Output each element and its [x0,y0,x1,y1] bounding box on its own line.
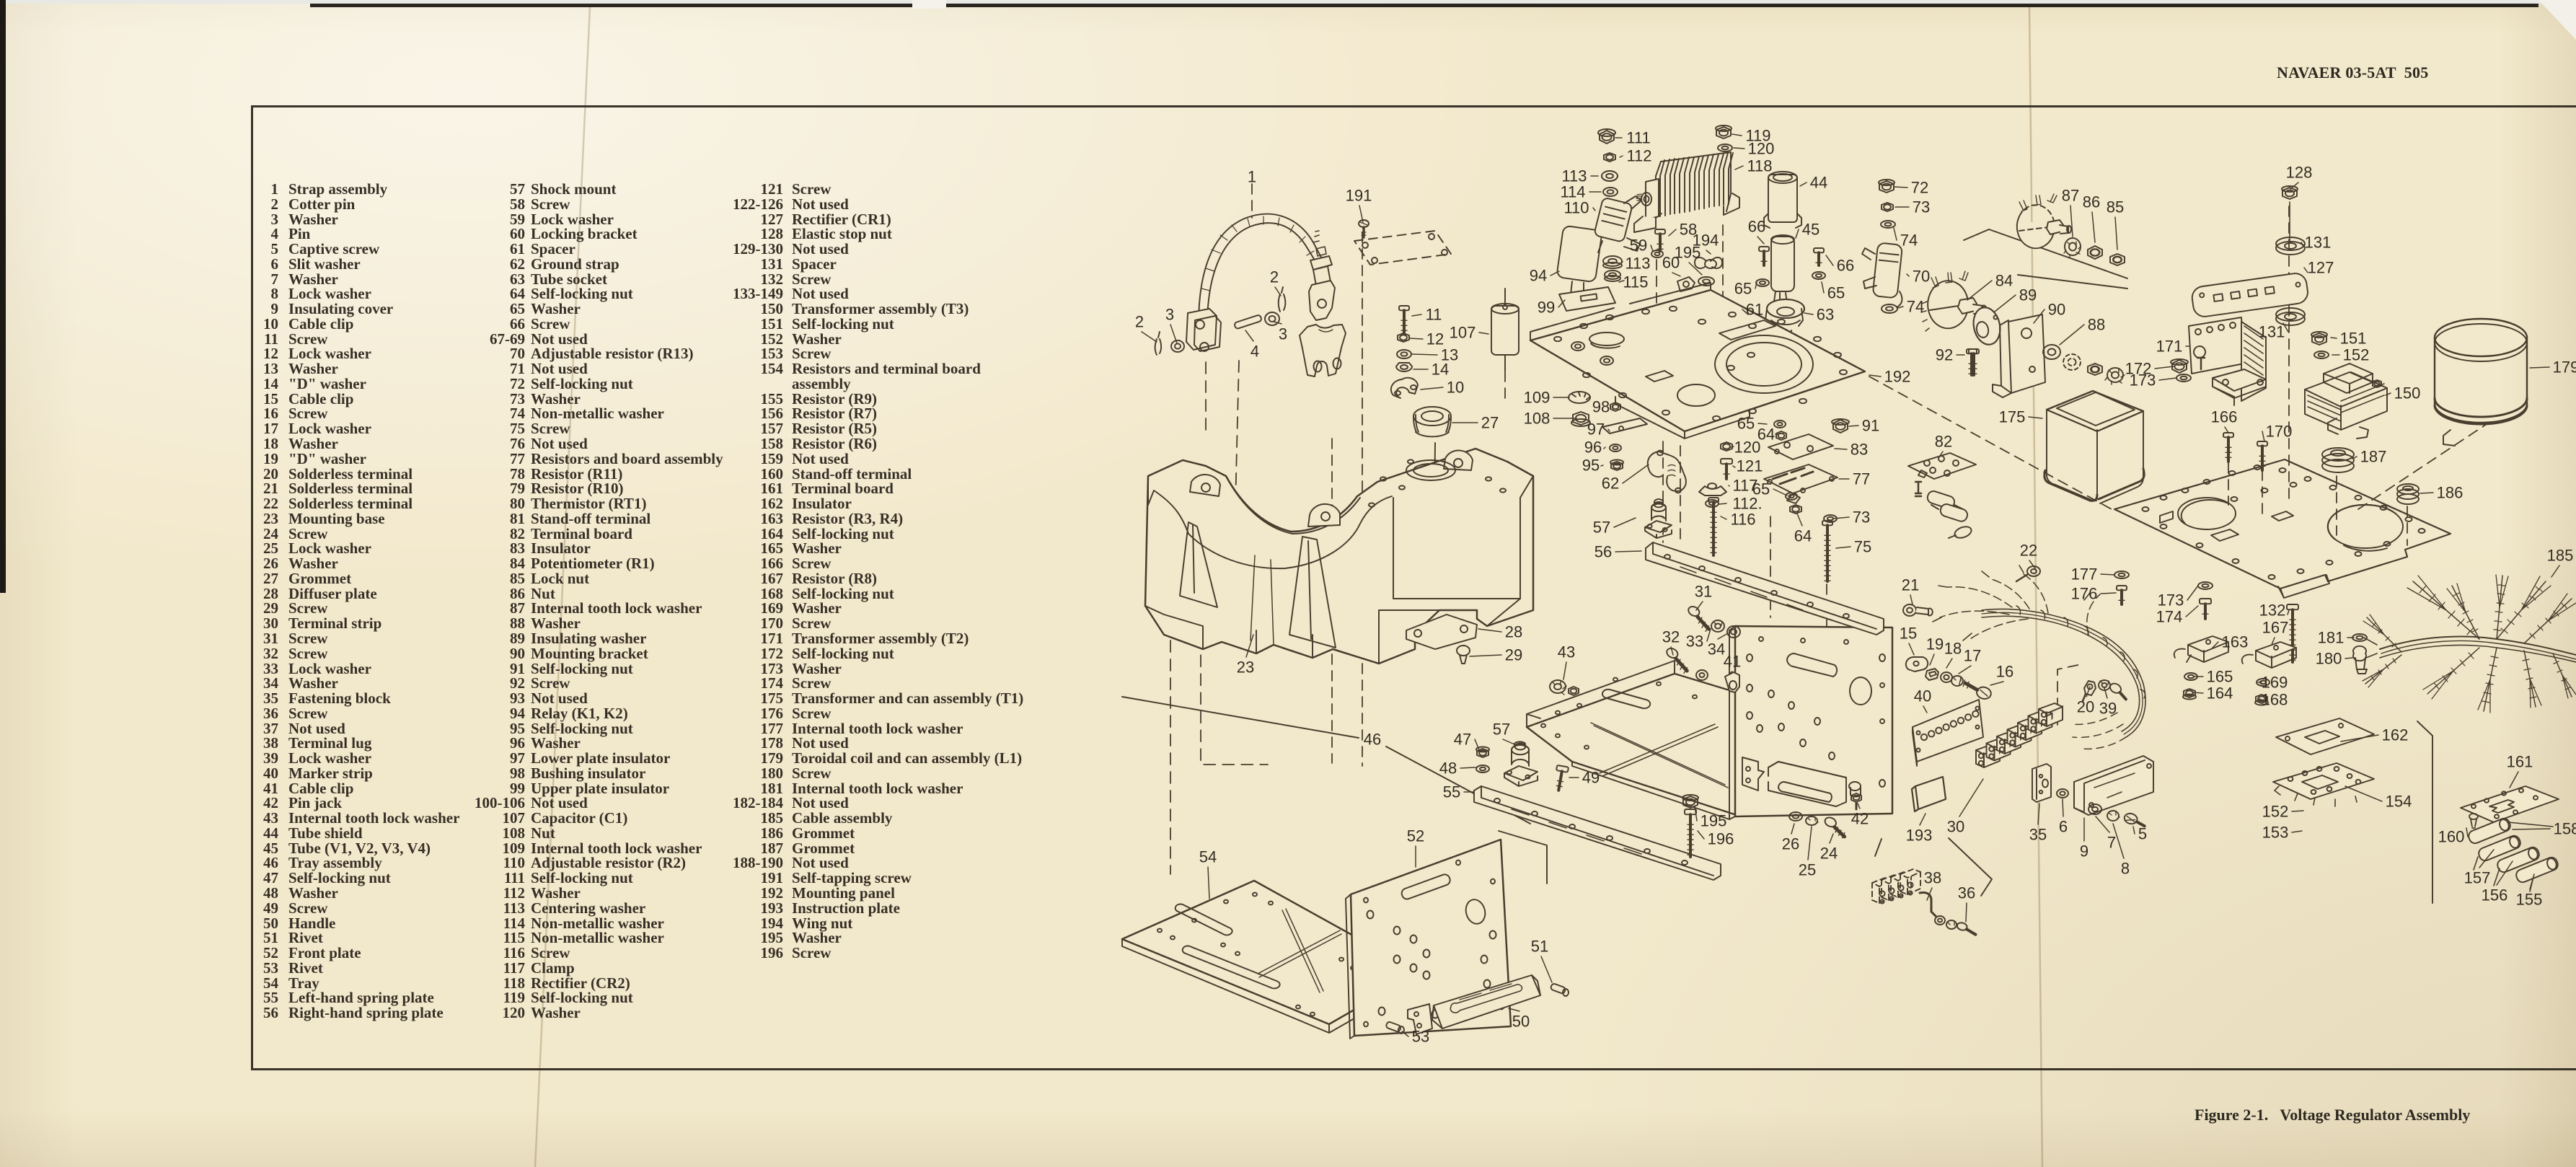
svg-text:94: 94 [1530,267,1547,285]
svg-text:152: 152 [2343,346,2370,364]
svg-text:45: 45 [1802,221,1819,239]
svg-text:18: 18 [1944,640,1962,658]
svg-text:180: 180 [2316,650,2342,668]
svg-text:120: 120 [1748,140,1775,158]
svg-text:164: 164 [2207,684,2233,703]
svg-text:158: 158 [2554,820,2576,838]
svg-text:185: 185 [2547,547,2574,565]
svg-text:20: 20 [2077,698,2094,716]
svg-text:152: 152 [2262,803,2289,821]
svg-text:14: 14 [1432,361,1449,379]
svg-text:66: 66 [1837,257,1854,275]
svg-text:92: 92 [1936,346,1953,364]
svg-text:35: 35 [2029,826,2047,844]
svg-text:36: 36 [1958,884,1975,902]
svg-text:21: 21 [1902,576,1919,594]
svg-text:3: 3 [1279,325,1287,343]
svg-text:91: 91 [1862,417,1879,435]
svg-text:8: 8 [2121,860,2130,878]
svg-text:42: 42 [1851,810,1869,828]
svg-text:166: 166 [2211,408,2238,426]
svg-text:1: 1 [1248,168,1256,186]
svg-text:44: 44 [1810,174,1827,192]
svg-text:73: 73 [1853,508,1870,527]
svg-text:151: 151 [2340,330,2367,348]
svg-text:88: 88 [2088,316,2105,334]
svg-text:192: 192 [1884,368,1911,386]
svg-text:41: 41 [1724,653,1741,671]
svg-text:150: 150 [2394,384,2421,402]
svg-text:70: 70 [1913,268,1930,286]
svg-text:15: 15 [1900,625,1917,643]
svg-text:56: 56 [1594,543,1612,561]
svg-text:127: 127 [2308,259,2334,277]
svg-text:65: 65 [1734,280,1752,298]
svg-text:74: 74 [1900,232,1918,250]
svg-text:25: 25 [1799,861,1816,879]
svg-text:128: 128 [2286,164,2313,182]
svg-text:64: 64 [1757,426,1775,444]
svg-text:155: 155 [2516,891,2543,909]
svg-text:64: 64 [1794,527,1812,545]
svg-text:160: 160 [2438,828,2465,846]
svg-text:112: 112 [1626,147,1651,165]
svg-text:176: 176 [2071,585,2098,603]
svg-text:30: 30 [1947,818,1964,836]
svg-text:162: 162 [2382,726,2409,744]
svg-text:77: 77 [1853,470,1870,488]
svg-text:49: 49 [1582,769,1600,787]
svg-text:5: 5 [2138,825,2147,843]
svg-text:191: 191 [1346,187,1372,205]
svg-text:39: 39 [2099,700,2117,718]
svg-text:17: 17 [1964,647,1981,665]
svg-text:196: 196 [1708,830,1734,848]
svg-text:50: 50 [1512,1013,1530,1031]
svg-text:31: 31 [1695,583,1712,601]
svg-text:16: 16 [1996,663,2013,681]
svg-text:111: 111 [1626,129,1650,147]
svg-text:11: 11 [1426,306,1442,324]
svg-text:65: 65 [1752,480,1770,498]
svg-text:118: 118 [1747,157,1772,175]
svg-text:115: 115 [1623,273,1648,291]
svg-text:90: 90 [2048,301,2065,319]
svg-text:4: 4 [1250,343,1259,361]
svg-text:131: 131 [2305,234,2332,252]
svg-text:168: 168 [2262,691,2288,709]
svg-text:85: 85 [2107,198,2124,216]
svg-text:46: 46 [1364,731,1381,749]
svg-text:54: 54 [1199,848,1217,866]
svg-text:163: 163 [2222,633,2249,651]
svg-text:74: 74 [1907,298,1924,316]
svg-text:32: 32 [1662,628,1680,646]
svg-text:19: 19 [1926,635,1944,653]
svg-text:193: 193 [1906,827,1933,845]
svg-text:99: 99 [1538,299,1555,317]
svg-text:23: 23 [1237,659,1254,677]
svg-text:24: 24 [1820,845,1838,863]
svg-text:65: 65 [1827,284,1845,302]
svg-text:82: 82 [1935,433,1952,451]
svg-text:173: 173 [2130,371,2156,389]
svg-text:22: 22 [2020,542,2037,560]
svg-text:107: 107 [1450,324,1476,342]
svg-text:110: 110 [1563,199,1589,217]
svg-text:57: 57 [1493,721,1510,739]
svg-text:65: 65 [1737,415,1755,433]
svg-text:181: 181 [2318,629,2345,647]
svg-text:6: 6 [2059,818,2068,836]
svg-text:75: 75 [1854,538,1871,556]
svg-text:89: 89 [2019,286,2037,304]
svg-text:62: 62 [1602,475,1619,493]
svg-text:28: 28 [1505,623,1522,641]
svg-text:3: 3 [1165,306,1174,324]
svg-text:51: 51 [1531,938,1548,956]
svg-text:43: 43 [1558,643,1575,661]
svg-text:153: 153 [2262,824,2289,842]
svg-text:170: 170 [2266,423,2293,441]
svg-text:97: 97 [1587,420,1605,439]
svg-text:47: 47 [1454,731,1471,749]
svg-text:95: 95 [1582,457,1600,475]
svg-text:177: 177 [2071,565,2098,583]
svg-text:55: 55 [1443,783,1460,801]
svg-text:132: 132 [2259,602,2286,620]
svg-text:157: 157 [2464,869,2491,887]
svg-text:59: 59 [1630,237,1647,255]
svg-text:40: 40 [1914,687,1931,705]
svg-text:194: 194 [1693,232,1719,250]
svg-text:96: 96 [1584,439,1602,457]
svg-text:86: 86 [2083,193,2100,211]
svg-text:52: 52 [1407,827,1424,845]
svg-text:195: 195 [1701,812,1727,830]
svg-text:48: 48 [1439,759,1457,778]
svg-text:116: 116 [1730,511,1755,529]
svg-text:26: 26 [1782,835,1799,853]
svg-text:165: 165 [2207,668,2233,686]
svg-text:7: 7 [2107,834,2116,852]
svg-text:73: 73 [1913,198,1930,216]
svg-text:63: 63 [1817,306,1834,324]
svg-text:84: 84 [1995,272,2013,290]
svg-text:173: 173 [2158,591,2184,609]
svg-text:10: 10 [1447,379,1464,397]
svg-text:98: 98 [1592,398,1610,416]
svg-text:167: 167 [2262,619,2289,637]
svg-text:154: 154 [2386,793,2412,811]
svg-text:29: 29 [1505,646,1522,664]
svg-text:174: 174 [2156,608,2183,626]
svg-text:186: 186 [2437,484,2463,502]
svg-text:61: 61 [1746,301,1763,319]
svg-text:83: 83 [1851,441,1868,459]
svg-text:53: 53 [1412,1028,1429,1046]
svg-text:187: 187 [2360,448,2387,466]
svg-text:87: 87 [2062,187,2079,205]
svg-text:121: 121 [1737,457,1763,475]
svg-text:2: 2 [1270,268,1279,286]
svg-text:169: 169 [2262,674,2288,692]
svg-text:38: 38 [1924,869,1941,887]
svg-text:57: 57 [1593,519,1610,537]
svg-text:113: 113 [1625,255,1650,273]
svg-text:27: 27 [1481,414,1499,432]
svg-text:109: 109 [1524,389,1551,407]
svg-text:175: 175 [1999,408,2026,426]
svg-text:72: 72 [1911,179,1928,197]
svg-text:34: 34 [1708,640,1725,659]
svg-text:161: 161 [2507,753,2533,771]
svg-text:9: 9 [2080,842,2088,860]
svg-text:66: 66 [1748,218,1765,236]
svg-text:171: 171 [2156,338,2183,356]
svg-text:156: 156 [2482,886,2508,904]
svg-text:179: 179 [2553,358,2576,376]
svg-text:131: 131 [2259,323,2285,341]
svg-text:108: 108 [1524,410,1551,428]
svg-text:2: 2 [1135,313,1144,331]
svg-text:33: 33 [1686,633,1703,651]
